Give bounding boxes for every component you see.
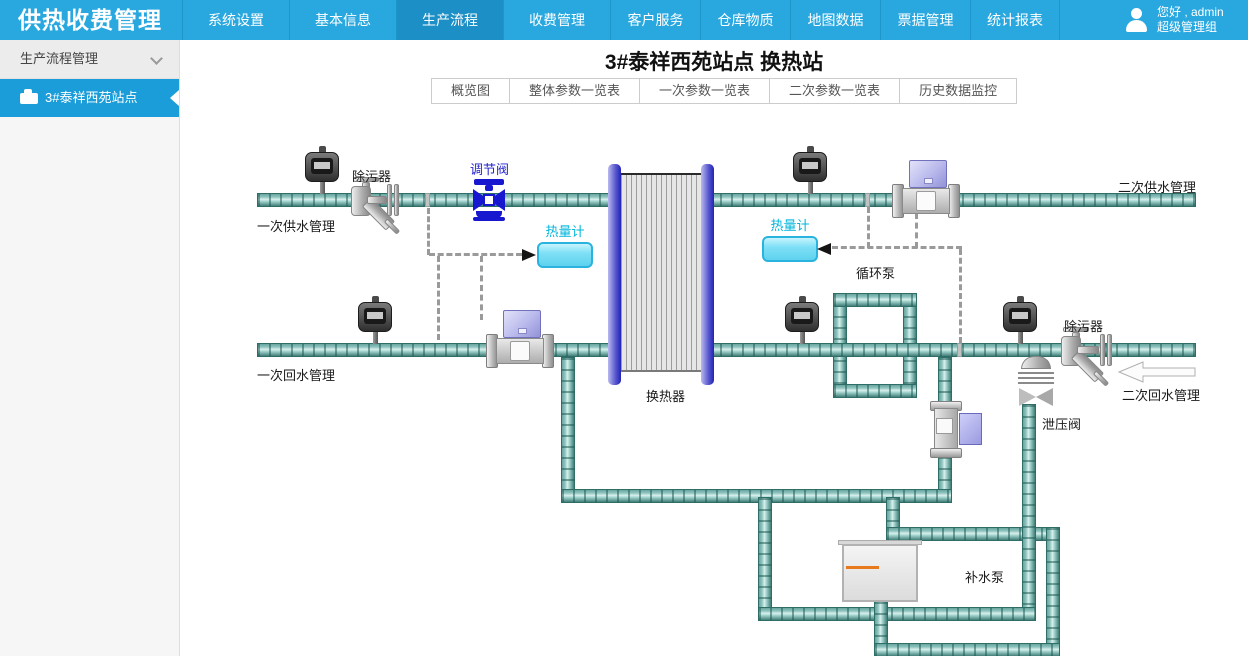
sidebar-item-label: 3#泰祥西苑站点 bbox=[45, 90, 137, 105]
sidebar-item-station[interactable]: 3#泰祥西苑站点 bbox=[0, 79, 179, 117]
tab-basic-info[interactable]: 基本信息 bbox=[289, 0, 396, 40]
sidebar-group-production[interactable]: 生产流程管理 bbox=[0, 40, 179, 79]
btn-secondary-params[interactable]: 二次参数一览表 bbox=[769, 78, 900, 104]
view-button-group: 概览图整体参数一览表一次参数一览表二次参数一览表历史数据监控 bbox=[432, 78, 1017, 104]
folder-icon bbox=[20, 93, 38, 104]
sidebar-group-label: 生产流程管理 bbox=[20, 51, 98, 66]
app-window: 供热收费管理 系统设置基本信息生产流程收费管理客户服务仓库物质地图数据票据管理统… bbox=[0, 0, 1248, 656]
btn-overall-params[interactable]: 整体参数一览表 bbox=[509, 78, 640, 104]
tab-fee-management[interactable]: 收费管理 bbox=[503, 0, 610, 40]
active-item-notch bbox=[170, 90, 179, 106]
tab-warehouse[interactable]: 仓库物质 bbox=[700, 0, 790, 40]
tab-ticket-management[interactable]: 票据管理 bbox=[880, 0, 970, 40]
main-nav-tabs: 系统设置基本信息生产流程收费管理客户服务仓库物质地图数据票据管理统计报表 bbox=[182, 0, 1060, 40]
user-text: 您好 , admin 超级管理组 bbox=[1157, 5, 1224, 35]
user-greeting: 您好 , admin bbox=[1157, 5, 1224, 20]
btn-overview[interactable]: 概览图 bbox=[431, 78, 510, 104]
user-info[interactable]: 您好 , admin 超级管理组 bbox=[1124, 0, 1224, 40]
app-logo: 供热收费管理 bbox=[0, 0, 180, 40]
tab-customer-service[interactable]: 客户服务 bbox=[610, 0, 700, 40]
chevron-down-icon bbox=[150, 52, 163, 65]
tab-system-settings[interactable]: 系统设置 bbox=[182, 0, 289, 40]
btn-primary-params[interactable]: 一次参数一览表 bbox=[639, 78, 770, 104]
user-role: 超级管理组 bbox=[1157, 20, 1224, 35]
sidebar: 生产流程管理 3#泰祥西苑站点 bbox=[0, 40, 180, 656]
btn-history-monitor[interactable]: 历史数据监控 bbox=[899, 78, 1017, 104]
top-navbar: 供热收费管理 系统设置基本信息生产流程收费管理客户服务仓库物质地图数据票据管理统… bbox=[0, 0, 1248, 40]
user-avatar-icon bbox=[1124, 6, 1150, 34]
tab-map-data[interactable]: 地图数据 bbox=[790, 0, 880, 40]
page-title: 3#泰祥西苑站点 换热站 bbox=[180, 46, 1248, 76]
tab-statistics[interactable]: 统计报表 bbox=[970, 0, 1060, 40]
tab-production-process[interactable]: 生产流程 bbox=[396, 0, 503, 40]
content-area: 3#泰祥西苑站点 换热站 概览图整体参数一览表一次参数一览表二次参数一览表历史数… bbox=[180, 40, 1248, 656]
